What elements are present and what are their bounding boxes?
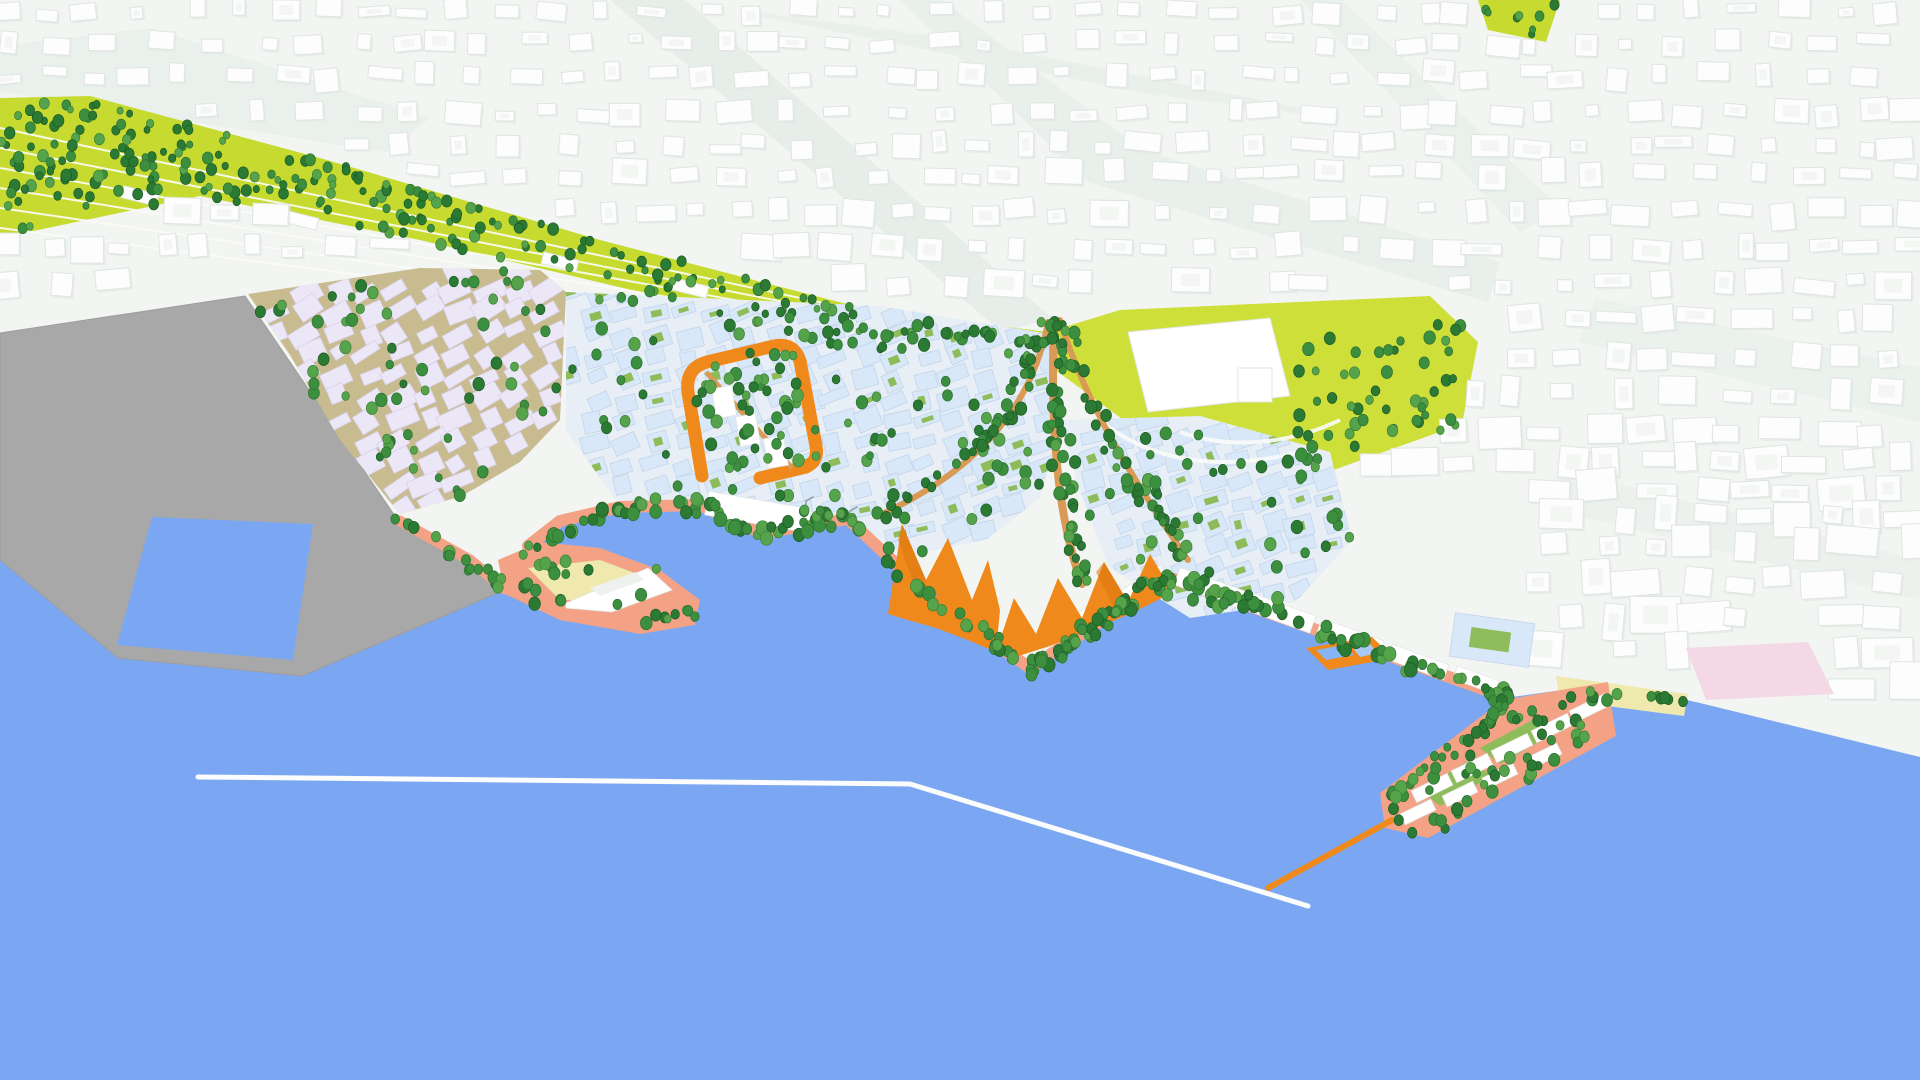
tree-icon (691, 492, 703, 505)
tree-icon (342, 166, 350, 175)
rooftop (669, 39, 684, 46)
tree-icon (551, 255, 558, 263)
tree-icon (883, 542, 894, 555)
city-building (1613, 641, 1636, 657)
tree-icon (280, 181, 287, 190)
tree-icon (1025, 382, 1033, 391)
city-building (1263, 164, 1298, 178)
city-building (1557, 280, 1572, 292)
tree-icon (691, 612, 700, 622)
tree-icon (1327, 510, 1338, 523)
tree-icon (539, 407, 547, 416)
tree-icon (569, 365, 577, 374)
city-building (558, 134, 579, 156)
tree-icon (816, 506, 824, 515)
city-building (1859, 142, 1874, 158)
tree-icon (1026, 354, 1036, 365)
rooftop (1827, 510, 1837, 519)
tree-icon (383, 434, 391, 444)
tree-icon (417, 363, 428, 376)
city-building (1496, 449, 1534, 472)
city-building (1073, 239, 1092, 260)
city-building (1140, 243, 1166, 255)
quarter-building (971, 348, 993, 370)
tree-icon (711, 362, 719, 371)
rooftop (1481, 140, 1500, 151)
tree-icon (923, 316, 934, 329)
tree-icon (1451, 751, 1458, 760)
tree-icon (1091, 420, 1100, 431)
tree-icon (1017, 336, 1025, 345)
tree-icon (859, 323, 868, 333)
rooftop (217, 209, 231, 217)
rooftop (1237, 250, 1250, 256)
tree-icon (110, 149, 119, 159)
city-building (1637, 4, 1654, 20)
tree-icon (849, 310, 857, 319)
tree-icon (431, 531, 440, 542)
tree-icon (1167, 579, 1176, 589)
city-building (1860, 205, 1892, 226)
tree-icon (651, 609, 661, 621)
tree-icon (822, 462, 831, 472)
tree-icon (67, 106, 73, 113)
tree-icon (1058, 653, 1067, 664)
tree-icon (673, 481, 682, 492)
tree-icon (1121, 474, 1133, 487)
tree-icon (66, 151, 75, 162)
city-building (1008, 238, 1024, 261)
tree-icon (927, 482, 935, 492)
tree-icon (1336, 634, 1346, 646)
tree-icon (1267, 497, 1276, 507)
city-building (1650, 270, 1672, 298)
tree-icon (323, 162, 332, 173)
city-building (732, 201, 753, 217)
tree-icon (1313, 397, 1320, 406)
tree-icon (1001, 399, 1012, 412)
tree-icon (1327, 393, 1337, 404)
tree-icon (677, 256, 686, 267)
rooftop (964, 68, 978, 80)
tree-icon (85, 192, 94, 202)
tree-icon (297, 179, 306, 190)
city-building (1652, 64, 1666, 82)
city-building (1674, 441, 1697, 471)
city-building (71, 237, 104, 263)
tree-icon (954, 332, 961, 340)
tree-icon (403, 430, 412, 440)
rooftop (4, 36, 13, 48)
tree-icon (222, 162, 228, 169)
rooftop (1571, 314, 1584, 323)
tree-icon (842, 320, 853, 333)
tree-icon (140, 160, 150, 172)
city-building (1312, 2, 1341, 26)
tree-icon (410, 446, 417, 454)
tree-icon (305, 154, 316, 166)
rooftop (1248, 140, 1259, 151)
tree-icon (360, 188, 366, 195)
tree-icon (268, 170, 276, 179)
tree-icon (717, 276, 724, 284)
city-building (1075, 2, 1102, 16)
tree-icon (1147, 450, 1155, 459)
tree-icon (881, 511, 892, 524)
city-building (1734, 531, 1756, 562)
city-building (1862, 304, 1892, 331)
tree-icon (1504, 751, 1515, 764)
tree-icon (1194, 579, 1204, 590)
tree-icon (1556, 721, 1564, 730)
tree-icon (1659, 691, 1670, 703)
tree-icon (51, 140, 58, 148)
tree-icon (54, 191, 62, 200)
city-building (778, 99, 794, 121)
tree-icon (592, 349, 602, 360)
tree-icon (500, 267, 508, 276)
tree-icon (477, 466, 488, 478)
rooftop (0, 278, 11, 293)
city-building (1358, 195, 1387, 224)
tree-icon (326, 188, 335, 198)
tree-icon (117, 107, 123, 114)
city-building (1155, 205, 1170, 219)
tree-icon (93, 100, 100, 108)
tree-icon (724, 373, 734, 385)
city-building (51, 272, 74, 297)
city-building (1418, 201, 1435, 212)
city-building (1889, 442, 1911, 471)
rooftop (724, 172, 739, 182)
tree-icon (356, 172, 363, 180)
tree-icon (1160, 427, 1171, 440)
rooftop (1516, 310, 1533, 325)
tree-icon (552, 530, 564, 543)
tree-icon (728, 484, 737, 494)
city-building (1598, 4, 1620, 19)
tree-icon (808, 295, 816, 305)
city-building (1890, 662, 1920, 700)
tree-icon (202, 152, 213, 164)
tree-icon (1328, 634, 1337, 644)
tree-icon (1113, 464, 1120, 472)
tree-icon (348, 293, 355, 301)
tree-icon (812, 452, 820, 461)
rooftop (1581, 40, 1592, 51)
city-building (924, 168, 955, 184)
rooftop (1717, 456, 1732, 466)
tree-icon (46, 157, 54, 167)
rooftop (1470, 387, 1479, 400)
city-building (245, 234, 260, 254)
city-building (825, 36, 850, 49)
rooftop (528, 35, 541, 41)
tree-icon (832, 375, 840, 384)
rooftop (1878, 384, 1895, 398)
city-building (1893, 162, 1918, 179)
rooftop (432, 35, 447, 46)
city-building (855, 142, 877, 156)
rooftop (1842, 10, 1850, 15)
city-building (1671, 352, 1716, 368)
rooftop (879, 239, 896, 251)
city-building (1522, 39, 1536, 55)
tree-icon (781, 350, 790, 361)
tree-icon (1612, 688, 1622, 699)
city-building (1030, 103, 1054, 119)
tree-icon (912, 319, 923, 331)
tree-icon (1488, 707, 1500, 720)
tree-icon (610, 248, 618, 257)
city-building (495, 5, 519, 18)
tree-icon (367, 286, 378, 298)
city-building (1288, 275, 1327, 291)
tree-icon (25, 105, 34, 116)
tree-icon (388, 343, 397, 353)
rooftop (1588, 567, 1603, 585)
city-building (1744, 267, 1782, 294)
tree-icon (1535, 11, 1544, 21)
city-building (841, 198, 875, 227)
city-building (1315, 37, 1334, 56)
tree-icon (669, 278, 676, 286)
tree-icon (94, 133, 104, 145)
city-building (1003, 197, 1034, 219)
tree-icon (93, 170, 104, 182)
rooftop (1052, 212, 1061, 220)
city-building (444, 0, 468, 19)
tree-icon (1513, 715, 1521, 724)
city-building (649, 66, 678, 79)
city-building (1415, 162, 1441, 179)
tree-icon (175, 148, 183, 157)
tree-icon (981, 412, 991, 424)
city-building (95, 268, 131, 291)
tree-icon (173, 124, 182, 134)
city-building (1540, 531, 1567, 554)
tree-icon (536, 304, 545, 315)
tree-icon (1057, 426, 1066, 437)
tree-icon (645, 285, 655, 297)
tree-icon (1007, 652, 1018, 665)
tree-icon (133, 188, 143, 199)
tree-icon (515, 223, 524, 233)
tree-icon (1449, 375, 1456, 383)
tree-icon (552, 383, 561, 393)
tree-icon (399, 228, 407, 238)
tree-icon (144, 126, 150, 133)
rooftop (1607, 613, 1619, 632)
rooftop (1729, 107, 1741, 114)
city-building (36, 9, 58, 22)
tree-icon (1062, 641, 1071, 652)
city-building (1377, 72, 1410, 86)
city-building (561, 70, 584, 83)
tree-icon (800, 505, 809, 516)
rooftop (1514, 353, 1528, 363)
tree-icon (1101, 409, 1112, 421)
tree-icon (1353, 633, 1364, 646)
city-building (666, 99, 700, 121)
city-building (1343, 236, 1359, 252)
tree-icon (751, 444, 759, 453)
tree-icon (1462, 795, 1472, 807)
rooftop (1759, 69, 1767, 81)
city-building (1723, 607, 1745, 627)
city-building (0, 2, 21, 21)
tree-icon (496, 252, 505, 262)
city-building (1842, 240, 1877, 254)
rooftop (608, 66, 616, 75)
city-building (502, 168, 526, 184)
city-building (1889, 98, 1920, 122)
rooftop (1022, 138, 1030, 151)
tree-icon (1085, 510, 1094, 521)
tree-icon (4, 127, 15, 139)
tree-icon (1388, 803, 1398, 815)
city-building (1235, 167, 1265, 179)
city-building (1486, 35, 1521, 58)
city-building (1712, 425, 1738, 442)
tree-icon (462, 278, 470, 287)
tree-icon (1256, 461, 1267, 473)
city-building (1758, 417, 1800, 439)
city-building (831, 264, 866, 292)
tree-icon (378, 221, 388, 232)
tree-icon (742, 424, 754, 437)
city-building (1558, 604, 1583, 629)
city-building (887, 67, 916, 86)
tree-icon (519, 550, 527, 559)
city-building (1246, 101, 1279, 119)
rooftop (1742, 240, 1749, 253)
tree-icon (1048, 420, 1056, 429)
tree-icon (769, 348, 780, 360)
tree-icon (277, 300, 286, 310)
tree-icon (848, 337, 858, 348)
city-building (1818, 421, 1861, 446)
tree-icon (1175, 446, 1183, 456)
tree-icon (122, 135, 131, 145)
tree-icon (1113, 447, 1124, 459)
city-building (69, 2, 97, 21)
tree-icon (955, 608, 965, 619)
rooftop (1667, 42, 1678, 52)
rooftop (1774, 36, 1786, 45)
tree-icon (89, 111, 97, 120)
rooftop (621, 164, 639, 178)
city-building (569, 33, 593, 52)
city-building (1369, 166, 1403, 177)
rooftop (1904, 241, 1920, 248)
city-building (249, 99, 264, 121)
tree-icon (1187, 593, 1198, 606)
tree-icon (1153, 581, 1162, 591)
tree-icon (620, 415, 630, 427)
tree-icon (1181, 540, 1192, 553)
tree-icon (149, 199, 159, 210)
city-building (1164, 33, 1178, 55)
tree-icon (504, 277, 511, 285)
tree-icon (650, 336, 657, 345)
city-building (1168, 103, 1186, 122)
rooftop (1430, 64, 1447, 76)
tree-icon (1397, 337, 1405, 346)
tree-icon (538, 220, 545, 228)
tree-icon (177, 140, 185, 149)
tree-icon (1105, 488, 1114, 499)
city-building (1778, 0, 1810, 18)
tree-icon (1146, 536, 1157, 549)
tree-icon (185, 125, 193, 134)
tree-icon (901, 328, 908, 336)
tree-icon (47, 167, 54, 175)
tree-icon (703, 405, 715, 419)
masterplan-aerial-rendering (0, 0, 1920, 1080)
city-building (316, 0, 342, 17)
tree-icon (1004, 349, 1012, 359)
tree-icon (253, 186, 259, 193)
tree-icon (521, 306, 529, 315)
tree-icon (1046, 459, 1057, 472)
city-building (1427, 100, 1456, 126)
city-building (1330, 73, 1348, 84)
city-building (1818, 604, 1864, 625)
tree-icon (308, 365, 319, 377)
tree-icon (540, 557, 551, 570)
city-building (1242, 65, 1274, 80)
city-building (1166, 0, 1197, 17)
tree-icon (1293, 426, 1303, 438)
city-building (768, 197, 788, 220)
tree-icon (1136, 577, 1146, 589)
city-building (1683, 0, 1699, 18)
tree-icon (650, 505, 662, 519)
rooftop (1531, 639, 1553, 658)
tree-icon (449, 276, 458, 287)
tree-icon (1451, 803, 1463, 816)
tree-icon (772, 412, 783, 424)
tree-icon (760, 531, 772, 545)
tree-icon (1072, 576, 1081, 587)
tree-icon (18, 223, 27, 234)
tree-icon (878, 342, 886, 352)
city-building (325, 235, 357, 256)
rooftop (1883, 355, 1893, 364)
city-building (344, 139, 368, 150)
tree-icon (793, 454, 805, 467)
rooftop (1181, 274, 1200, 286)
city-building (1053, 66, 1069, 76)
city-building (1707, 134, 1735, 156)
city-building (415, 61, 434, 84)
tree-icon (522, 578, 532, 590)
tree-icon (266, 186, 273, 194)
tree-icon (1066, 359, 1076, 371)
tree-icon (753, 358, 760, 366)
city-building (1633, 163, 1665, 179)
city-building (1793, 527, 1819, 560)
rooftop (285, 69, 302, 78)
tree-icon (1085, 400, 1097, 414)
tree-icon (742, 524, 752, 535)
tree-icon (67, 140, 77, 152)
tree-icon (15, 111, 22, 119)
city-building (1587, 414, 1622, 444)
tree-icon (1271, 561, 1282, 574)
city-building (1872, 571, 1903, 594)
